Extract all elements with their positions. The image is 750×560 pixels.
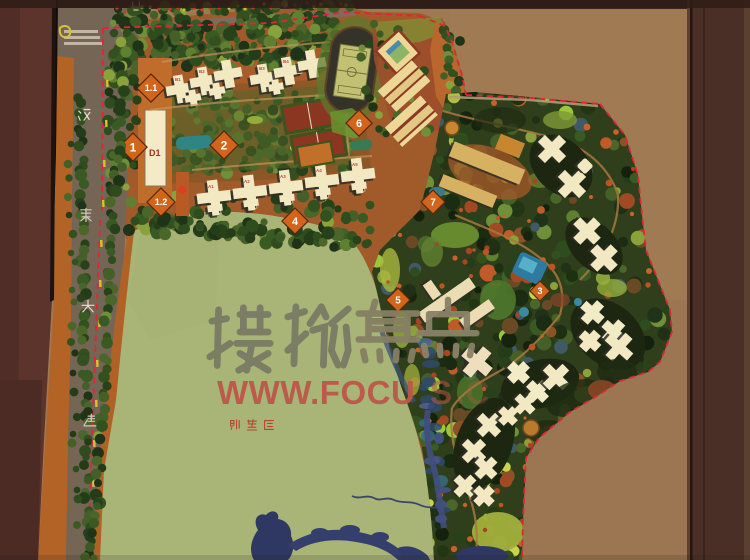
svg-text:5: 5 [395, 296, 401, 307]
svg-text:1.1: 1.1 [145, 83, 158, 93]
svg-text:1: 1 [130, 140, 137, 154]
svg-text:A5: A5 [352, 162, 358, 167]
svg-text:S: S [430, 374, 453, 411]
svg-text:B2: B2 [199, 69, 205, 74]
svg-text:.C: .C [456, 374, 490, 411]
svg-text:WWW.FOCU: WWW.FOCU [217, 374, 415, 411]
svg-text:B3: B3 [259, 66, 265, 71]
svg-text:6: 6 [356, 118, 362, 130]
svg-text:A3: A3 [280, 174, 286, 179]
svg-text:7: 7 [430, 198, 436, 209]
svg-text:4: 4 [292, 216, 299, 228]
svg-text:B1: B1 [175, 77, 181, 82]
svg-text:A4: A4 [316, 168, 322, 173]
svg-text:A2: A2 [244, 179, 250, 184]
svg-text:1.2: 1.2 [155, 197, 168, 207]
svg-text:3: 3 [537, 286, 542, 296]
svg-text:2: 2 [221, 138, 228, 152]
svg-text:A1: A1 [208, 184, 214, 189]
svg-text:D1: D1 [149, 148, 161, 158]
svg-text:B4: B4 [283, 59, 289, 64]
